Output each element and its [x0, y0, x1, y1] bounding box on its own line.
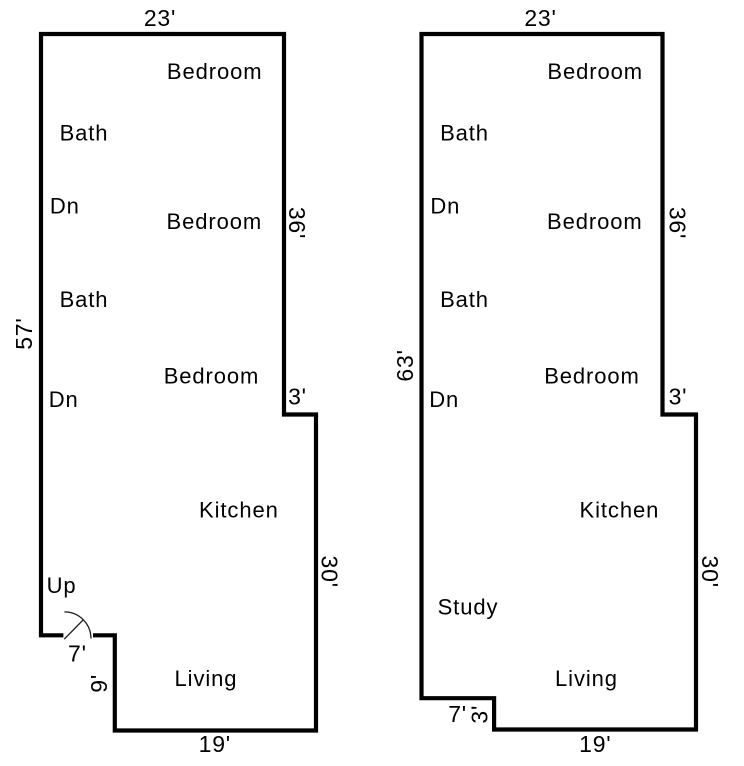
svg-text:Dn: Dn — [429, 387, 459, 412]
svg-text:23': 23' — [144, 5, 176, 31]
svg-text:Kitchen: Kitchen — [199, 498, 279, 523]
svg-text:Bath: Bath — [440, 121, 489, 146]
svg-text:Bedroom: Bedroom — [167, 209, 263, 234]
svg-text:Dn: Dn — [50, 194, 80, 219]
svg-text:Kitchen: Kitchen — [580, 498, 660, 523]
svg-text:7': 7' — [68, 641, 87, 667]
svg-text:36': 36' — [665, 207, 691, 239]
svg-text:3': 3' — [466, 705, 492, 724]
svg-text:Bath: Bath — [60, 121, 109, 146]
svg-text:Study: Study — [438, 595, 499, 620]
svg-text:3': 3' — [288, 384, 307, 410]
svg-text:19': 19' — [579, 731, 611, 757]
svg-text:9': 9' — [86, 674, 112, 693]
svg-text:Bedroom: Bedroom — [164, 364, 260, 389]
svg-text:30': 30' — [317, 556, 343, 588]
svg-text:Bath: Bath — [440, 287, 489, 312]
svg-text:Dn: Dn — [430, 194, 460, 219]
svg-text:Bedroom: Bedroom — [547, 59, 643, 84]
svg-text:30': 30' — [697, 556, 723, 588]
svg-text:Bedroom: Bedroom — [547, 209, 643, 234]
svg-text:Dn: Dn — [49, 387, 79, 412]
svg-text:23': 23' — [524, 5, 556, 31]
svg-text:Living: Living — [175, 666, 238, 691]
svg-text:Bath: Bath — [60, 287, 109, 312]
svg-text:Living: Living — [555, 666, 618, 691]
svg-text:36': 36' — [284, 207, 310, 239]
svg-text:Bedroom: Bedroom — [544, 364, 640, 389]
svg-text:3': 3' — [669, 384, 688, 410]
svg-text:Bedroom: Bedroom — [167, 59, 263, 84]
svg-text:19': 19' — [199, 731, 231, 757]
svg-text:63': 63' — [392, 349, 418, 381]
svg-text:57': 57' — [11, 317, 37, 349]
svg-text:7': 7' — [448, 701, 467, 727]
svg-text:Up: Up — [47, 573, 77, 598]
